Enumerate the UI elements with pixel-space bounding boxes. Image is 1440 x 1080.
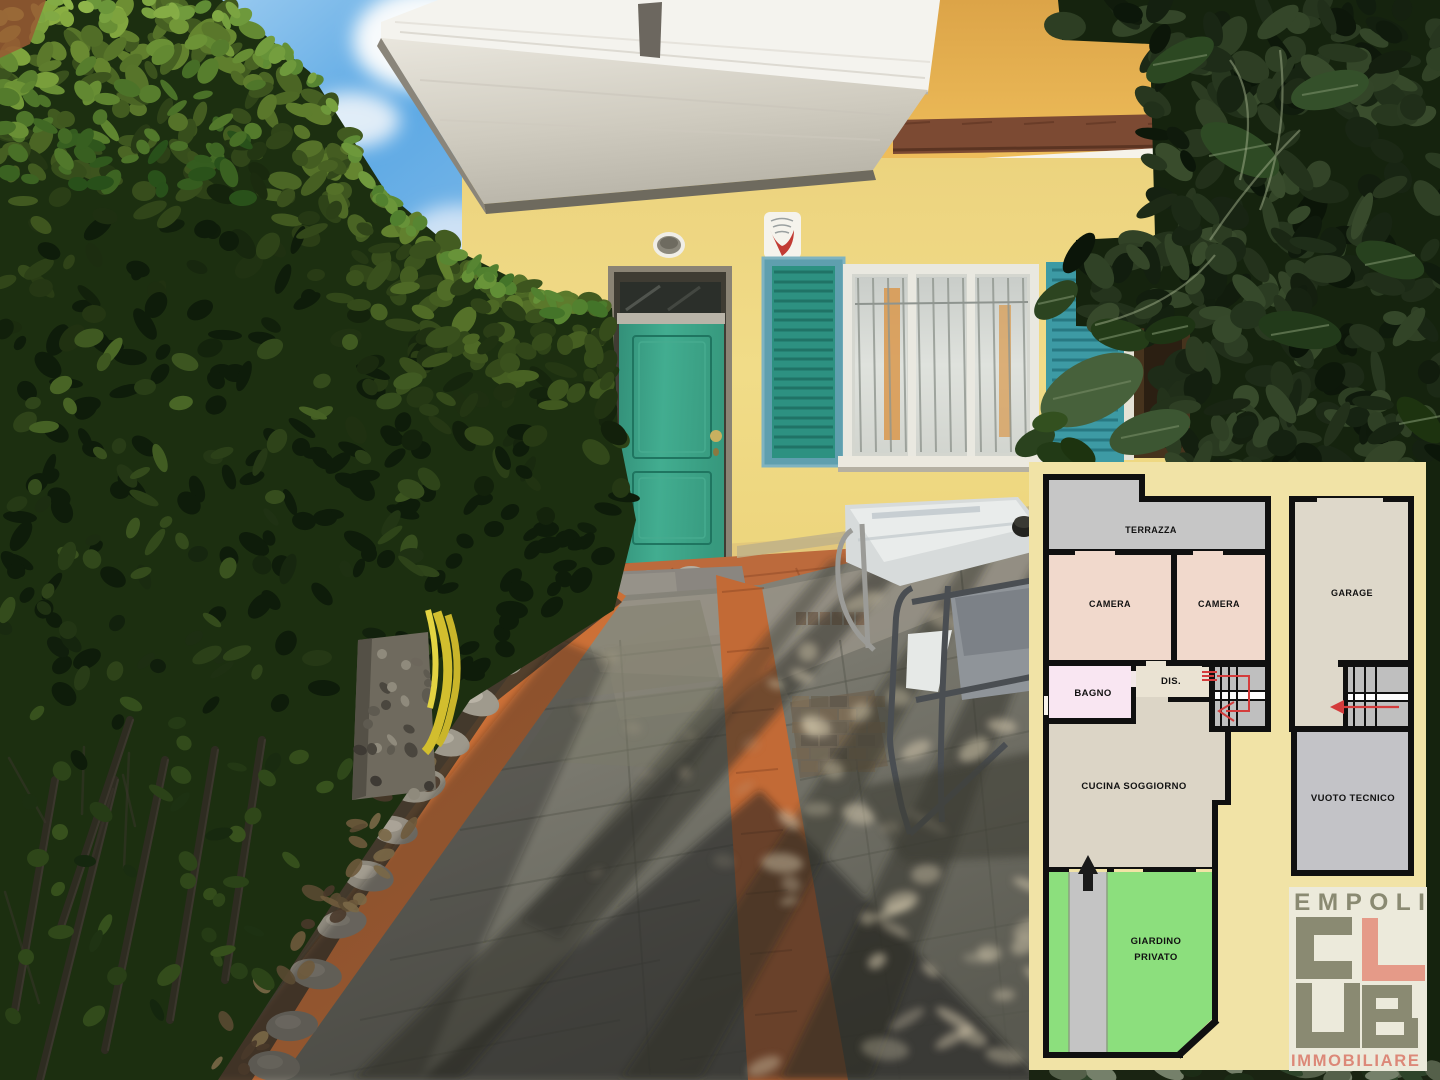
svg-text:TERRAZZA: TERRAZZA: [1125, 525, 1177, 535]
svg-text:GIARDINO: GIARDINO: [1131, 936, 1182, 947]
svg-text:CAMERA: CAMERA: [1198, 599, 1240, 609]
svg-text:DIS.: DIS.: [1161, 676, 1181, 687]
svg-text:EMPOLI: EMPOLI: [1294, 889, 1432, 916]
svg-text:CAMERA: CAMERA: [1089, 599, 1131, 609]
svg-text:BAGNO: BAGNO: [1074, 688, 1111, 699]
svg-text:VUOTO TECNICO: VUOTO TECNICO: [1311, 793, 1395, 804]
svg-text:PRIVATO: PRIVATO: [1134, 952, 1177, 963]
svg-text:CUCINA SOGGIORNO: CUCINA SOGGIORNO: [1081, 781, 1186, 792]
svg-text:IMMOBILIARE: IMMOBILIARE: [1291, 1052, 1421, 1070]
svg-text:GARAGE: GARAGE: [1331, 588, 1373, 598]
